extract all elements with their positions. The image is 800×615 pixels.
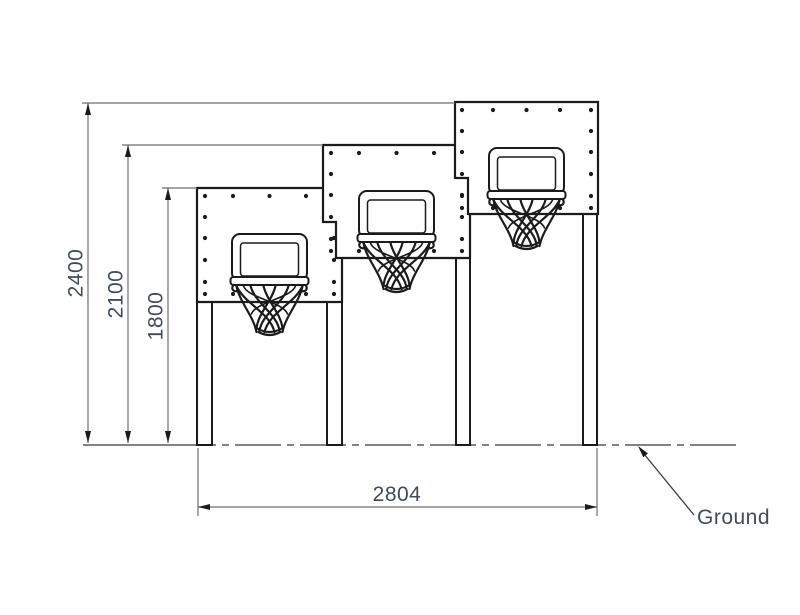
elevation-drawing: 2400 2100 1800 2804 Ground — [0, 0, 800, 615]
dimension-label-2100: 2100 — [105, 270, 128, 319]
ground-callout: Ground — [638, 446, 770, 529]
dimension-label-1800: 1800 — [145, 292, 168, 341]
dimension-height-1800: 1800 — [145, 188, 197, 443]
support-post — [456, 240, 470, 445]
support-post — [197, 280, 212, 445]
dimension-label-2804: 2804 — [373, 483, 422, 506]
backboard-tall — [455, 102, 598, 249]
backboard-middle — [323, 145, 470, 292]
support-post — [327, 280, 342, 445]
backboard-low — [197, 188, 342, 335]
dimension-label-2400: 2400 — [65, 249, 88, 298]
support-post — [583, 190, 597, 445]
ground-label: Ground — [697, 506, 770, 529]
dimension-width-2804: 2804 — [198, 448, 597, 516]
